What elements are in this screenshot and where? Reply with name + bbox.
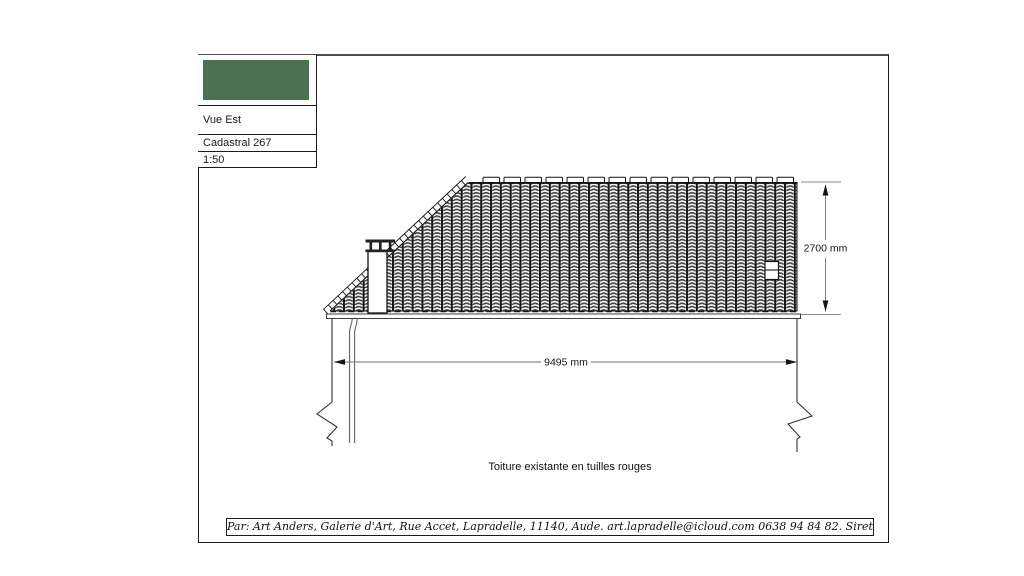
roof-tile-field — [330, 183, 797, 312]
drawing-caption: Toiture existante en tuilles rouges — [420, 461, 720, 473]
arrow-left-icon — [334, 359, 345, 365]
left-wall — [317, 319, 337, 447]
dimension-height: 2700 mm — [801, 182, 848, 315]
dimension-width-label: 9495 mm — [544, 357, 588, 369]
downpipe — [350, 319, 358, 444]
arrow-right-icon — [786, 359, 797, 365]
right-wall — [788, 319, 812, 453]
roof-vent — [765, 262, 779, 280]
elevation-drawing: 9495 mm 2700 mm — [0, 0, 1024, 576]
ridge-cap-tiles — [483, 177, 794, 182]
dimension-width: 9495 mm — [334, 357, 797, 369]
dimension-height-label: 2700 mm — [804, 243, 848, 255]
arrow-down-icon — [823, 301, 829, 312]
footer-credit: Par: Art Anders, Galerie d'Art, Rue Acce… — [226, 518, 874, 536]
arrow-up-icon — [823, 185, 829, 196]
eave-fascia — [327, 314, 801, 319]
sheet: Vue Est Cadastral 267 1:50 — [0, 0, 1024, 576]
